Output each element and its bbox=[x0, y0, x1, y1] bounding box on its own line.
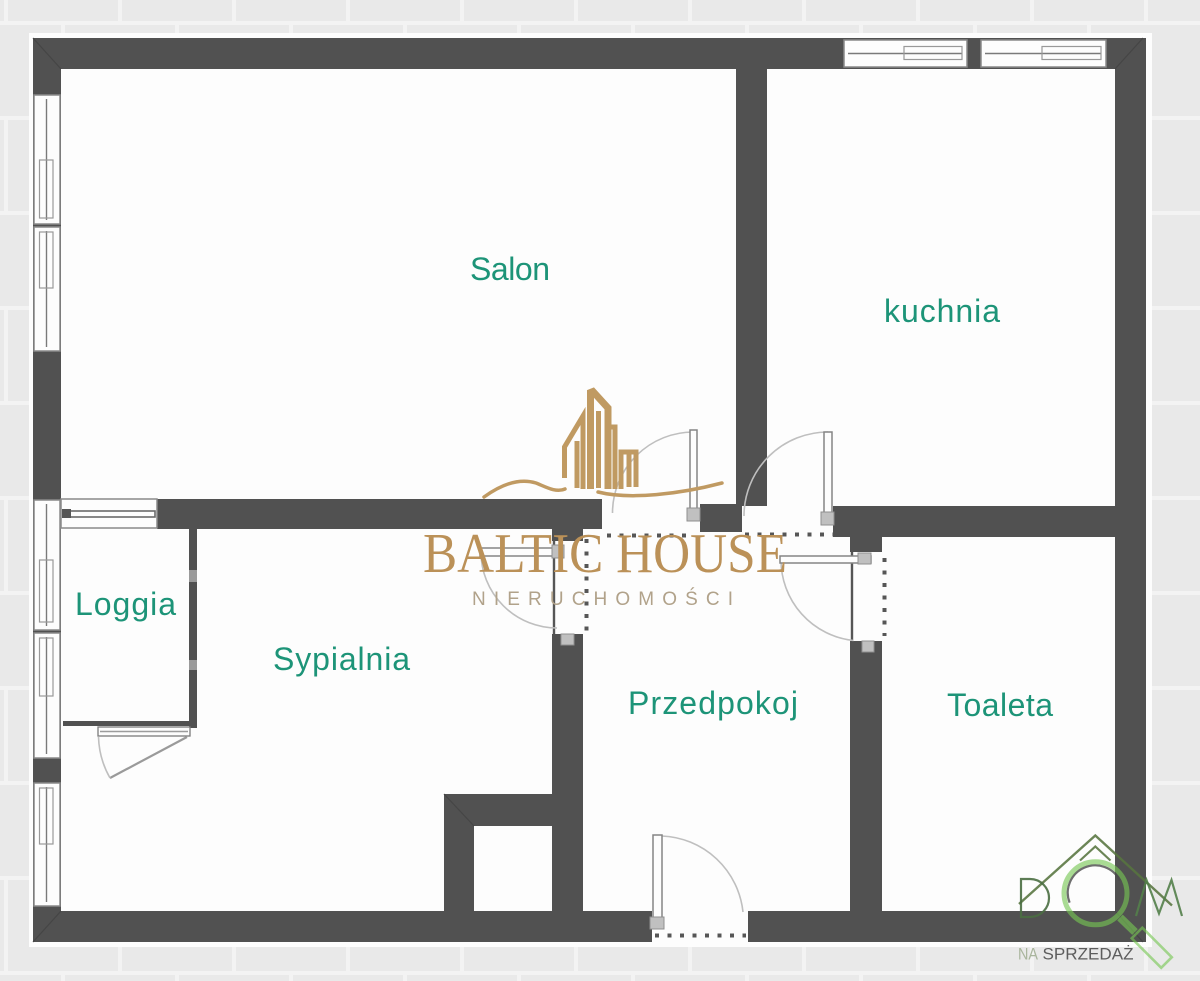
svg-text:NA: NA bbox=[1018, 945, 1039, 964]
svg-text:kuchnia: kuchnia bbox=[884, 293, 1000, 329]
svg-text:Loggia: Loggia bbox=[75, 586, 176, 622]
svg-text:NIERUCHOMOŚCI: NIERUCHOMOŚCI bbox=[472, 588, 733, 610]
svg-text:SPRZEDAŻ: SPRZEDAŻ bbox=[1043, 945, 1134, 964]
svg-text:Salon: Salon bbox=[470, 251, 550, 287]
svg-text:Sypialnia: Sypialnia bbox=[273, 641, 410, 677]
svg-text:BALTIC HOUSE: BALTIC HOUSE bbox=[423, 523, 787, 585]
svg-text:Toaleta: Toaleta bbox=[947, 687, 1053, 723]
svg-text:Przedpokoj: Przedpokoj bbox=[628, 685, 798, 721]
